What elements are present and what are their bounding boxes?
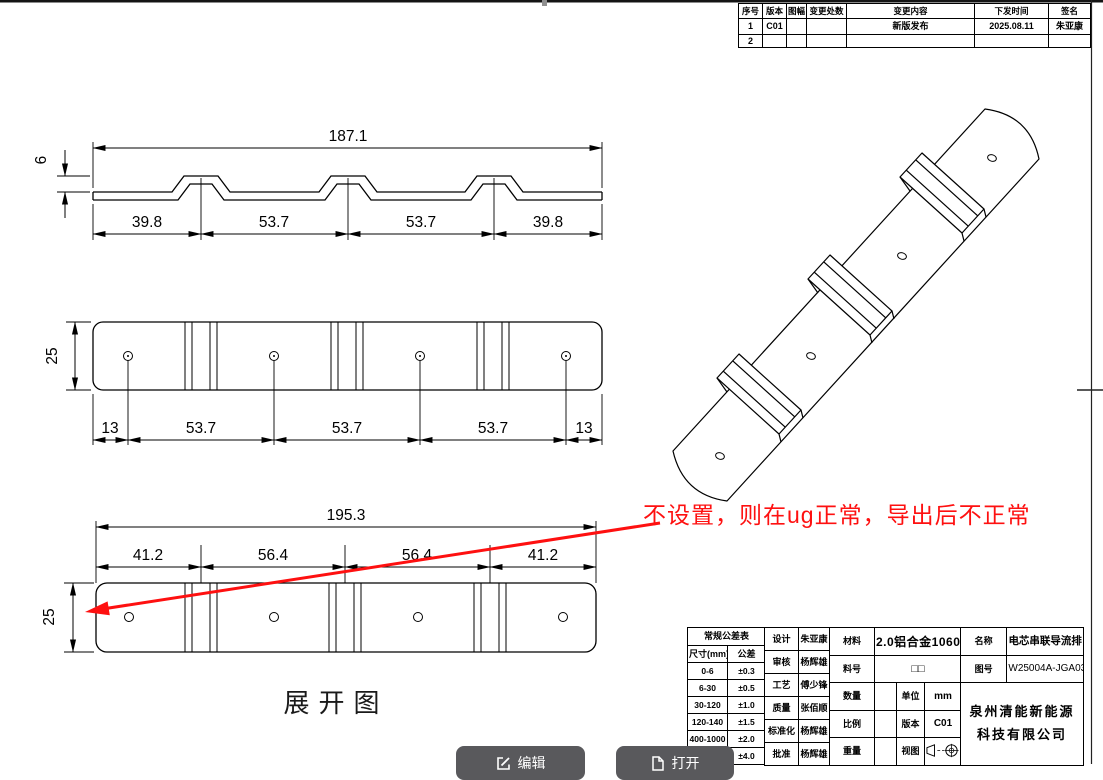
dim-label: 6 — [33, 156, 50, 165]
dim-label: 39.8 — [132, 214, 162, 231]
weight-value — [875, 738, 897, 766]
tol-cell: ±0.5 — [728, 680, 766, 697]
open-button[interactable]: 打开 — [616, 746, 734, 780]
unit-label: 单位 — [897, 683, 925, 711]
view-caption: 展开图 — [283, 688, 388, 718]
revision-header-row: 序号 版本 图幅 变更处数 变更内容 下发时间 签名 — [739, 4, 1091, 19]
plan-outline — [93, 322, 602, 390]
name-label: 名称 — [961, 628, 1007, 656]
role-name: 杨辉雄 — [799, 720, 830, 743]
title-block-roles: 设计朱亚康 审核杨辉雄 工艺傅少锋 质量张佰顺 标准化杨辉雄 批准杨辉雄 — [764, 627, 830, 766]
rev-cell: 2025.08.11 — [975, 19, 1049, 35]
open-button-label: 打开 — [672, 753, 700, 773]
rev-cell — [807, 35, 847, 48]
dim-label: 187.1 — [329, 128, 368, 145]
role-name: 朱亚康 — [799, 628, 830, 651]
company-line-1: 泉州清能新能源 — [962, 701, 1082, 724]
rev-col-header: 签名 — [1049, 4, 1091, 19]
dim-label: 53.7 — [186, 420, 216, 437]
view-plan: 25 13 53.7 53.7 53.7 13 — [44, 322, 602, 445]
top-tick-mark — [542, 0, 547, 6]
revision-row: 2 — [739, 35, 1091, 48]
open-file-icon — [651, 756, 665, 771]
unfold-outline — [96, 583, 596, 652]
rev-col-header: 序号 — [739, 4, 763, 19]
rev-cell — [1049, 35, 1091, 48]
role-label: 设计 — [765, 628, 799, 651]
tol-cell: 0-6 — [688, 663, 728, 680]
drawing-no-value: W25004A-JGA03 — [1007, 656, 1084, 683]
version-label: 版本 — [897, 711, 925, 738]
rev-cell — [787, 35, 807, 48]
rev-cell: C01 — [763, 19, 787, 35]
dim-label: 53.7 — [406, 214, 436, 231]
part-no-label: 料号 — [830, 656, 875, 683]
dim-label: 41.2 — [528, 547, 558, 564]
material-value: 2.0铝合金1060 — [875, 628, 962, 656]
part-no-value: □□ — [875, 656, 962, 683]
tolerance-col-header: 公差 — [728, 646, 766, 663]
red-annotation-text: 不设置，则在ug正常，导出后不正常 — [643, 496, 1031, 530]
revision-table: 序号 版本 图幅 变更处数 变更内容 下发时间 签名 1 C01 新版发布 20… — [738, 3, 1091, 48]
quantity-label: 数量 — [830, 683, 875, 711]
version-value: C01 — [925, 711, 962, 738]
role-name: 傅少锋 — [799, 674, 830, 697]
rev-cell — [975, 35, 1049, 48]
tol-cell: 30-120 — [688, 697, 728, 714]
dim-label: 41.2 — [133, 547, 163, 564]
dim-label: 53.7 — [259, 214, 289, 231]
company-line-2: 科技有限公司 — [962, 724, 1082, 747]
revision-row: 1 C01 新版发布 2025.08.11 朱亚康 — [739, 19, 1091, 35]
role-label: 质量 — [765, 697, 799, 720]
title-block-name: 名称 电芯串联导流排 图号 W25004A-JGA03 泉州清能新能源 科技有限… — [960, 627, 1084, 766]
weight-label: 重量 — [830, 738, 875, 766]
company-name: 泉州清能新能源 科技有限公司 — [961, 683, 1084, 766]
role-name: 张佰顺 — [799, 697, 830, 720]
material-label: 材料 — [830, 628, 875, 656]
cad-drawing-page: { "annotation": { "text": "不设置，则在ug正常，导出… — [0, 0, 1103, 764]
rev-cell — [787, 19, 807, 35]
dim-label: 13 — [575, 420, 592, 437]
rev-cell — [807, 19, 847, 35]
projection-symbol-cell — [925, 738, 962, 766]
role-label: 工艺 — [765, 674, 799, 697]
view-label: 视图 — [897, 738, 925, 766]
edit-button-label: 编辑 — [518, 753, 546, 773]
drawing-no-label: 图号 — [961, 656, 1007, 683]
tolerance-table: 常规公差表 尺寸(mm) 公差 0-6±0.3 6-30±0.5 30-120±… — [687, 627, 766, 765]
name-value: 电芯串联导流排 — [1007, 628, 1084, 656]
view-unfold: 195.3 41.2 56.4 56.4 41.2 25 展开图 — [41, 507, 596, 718]
rev-cell — [763, 35, 787, 48]
rev-col-header: 版本 — [763, 4, 787, 19]
role-name: 杨辉雄 — [799, 743, 830, 766]
role-name: 杨辉雄 — [799, 651, 830, 674]
rev-col-header: 变更处数 — [807, 4, 847, 19]
scale-label: 比例 — [830, 711, 875, 738]
scale-value — [875, 711, 897, 738]
tol-cell: ±1.0 — [728, 697, 766, 714]
tolerance-title: 常规公差表 — [688, 628, 766, 646]
quantity-value — [875, 683, 897, 711]
rev-cell — [847, 35, 975, 48]
first-angle-projection-icon — [926, 743, 960, 758]
tol-cell: 6-30 — [688, 680, 728, 697]
edit-pencil-icon — [496, 756, 511, 771]
view-profile: 187.1 6 39.8 53.7 53.7 39.8 — [33, 128, 602, 240]
rev-cell: 新版发布 — [847, 19, 975, 35]
dim-label: 195.3 — [327, 507, 366, 524]
title-block-fields: 材料 2.0铝合金1060 料号 □□ 数量 单位 mm 比例 版本 C01 重… — [829, 627, 962, 766]
dim-label: 53.7 — [332, 420, 362, 437]
tol-cell: 120-140 — [688, 714, 728, 731]
edit-button[interactable]: 编辑 — [456, 746, 585, 780]
rev-cell: 2 — [739, 35, 763, 48]
view-isometric — [673, 109, 1039, 501]
dim-label: 25 — [44, 347, 61, 364]
unit-value: mm — [925, 683, 962, 711]
role-label: 标准化 — [765, 720, 799, 743]
tol-cell: ±0.3 — [728, 663, 766, 680]
rev-col-header: 变更内容 — [847, 4, 975, 19]
rev-col-header: 下发时间 — [975, 4, 1049, 19]
dim-label: 25 — [41, 608, 58, 625]
role-label: 审核 — [765, 651, 799, 674]
dim-label: 39.8 — [533, 214, 563, 231]
dim-label: 13 — [101, 420, 118, 437]
tol-cell: 400-1000 — [688, 731, 728, 748]
tol-cell: ±1.5 — [728, 714, 766, 731]
rev-col-header: 图幅 — [787, 4, 807, 19]
tol-cell: ±2.0 — [728, 731, 766, 748]
rev-cell: 朱亚康 — [1049, 19, 1091, 35]
dim-label: 53.7 — [478, 420, 508, 437]
dim-label: 56.4 — [258, 547, 289, 564]
rev-cell: 1 — [739, 19, 763, 35]
tolerance-col-header: 尺寸(mm) — [688, 646, 728, 663]
role-label: 批准 — [765, 743, 799, 766]
